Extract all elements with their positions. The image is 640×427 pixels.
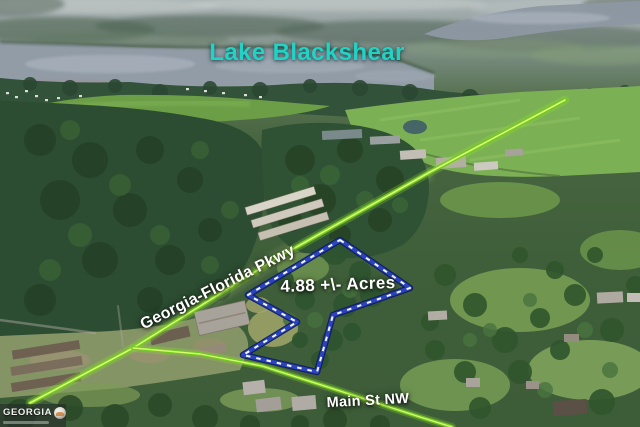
aerial-listing-photo: Lake Blackshear Georgia-Florida Pkwy 4.8… [0,0,640,427]
mls-watermark: GEORGIA [0,404,66,427]
watermark-brand-text: GEORGIA [3,408,52,418]
mls-logo-icon [54,407,66,419]
pond [403,120,427,134]
watermark-fineprint-bar [3,421,49,424]
aerial-scene [0,0,640,427]
watermark-row: GEORGIA [3,407,63,419]
